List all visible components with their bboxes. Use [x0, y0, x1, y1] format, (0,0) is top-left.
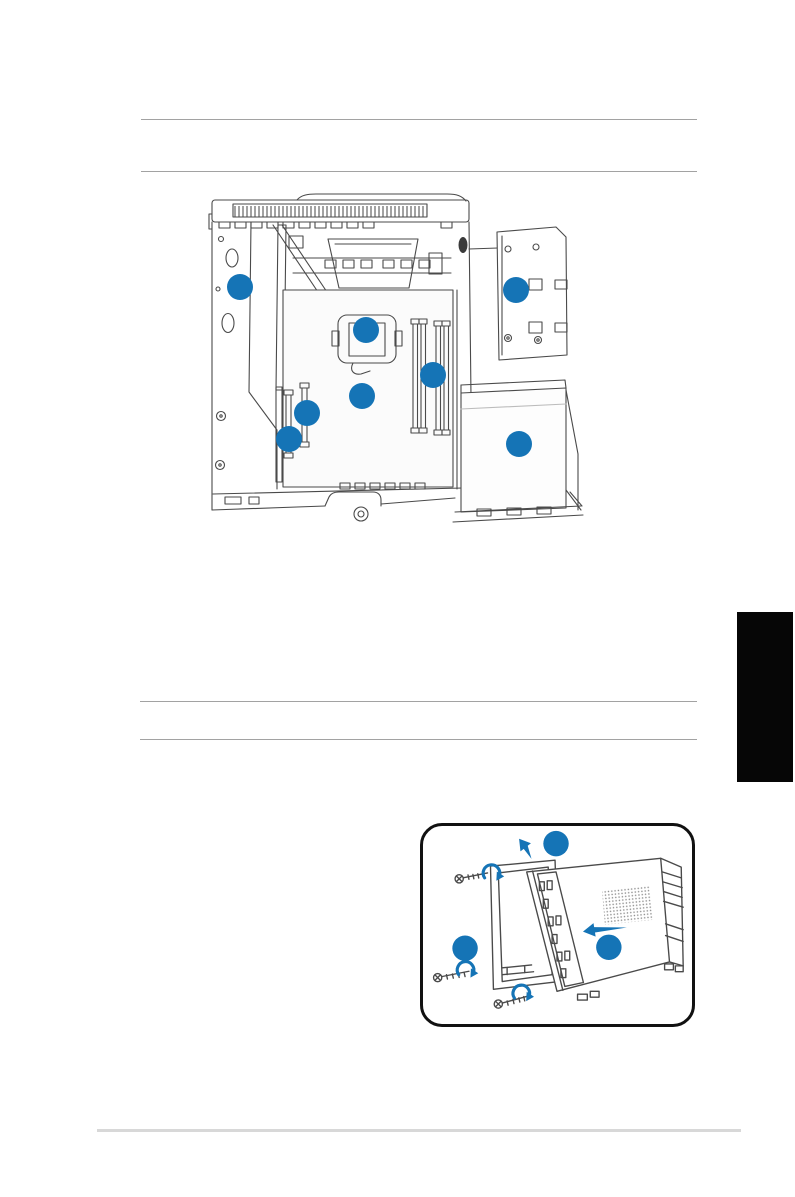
lift-arrow — [514, 835, 539, 862]
panel-callout-marker-3 — [596, 935, 621, 960]
callout-marker-4 — [420, 362, 446, 388]
mesh-vent — [602, 886, 653, 925]
header-rule-bottom — [141, 171, 697, 172]
case-interior-figure — [185, 192, 605, 532]
front-panel — [209, 214, 277, 510]
cover-bottom-tabs — [578, 991, 600, 1000]
callout-marker-7 — [276, 426, 302, 452]
screw-3 — [494, 996, 527, 1008]
section-rule-bottom — [140, 739, 697, 740]
header-rule-top — [141, 119, 697, 120]
chassis-line-art — [434, 858, 684, 1008]
manual-page — [0, 0, 795, 1197]
footer-rule — [97, 1129, 741, 1132]
chassis-clips — [219, 222, 452, 228]
panel-removal-figure — [420, 823, 695, 1027]
chapter-tab — [737, 612, 793, 782]
case-interior-svg — [185, 192, 605, 532]
bottom-rail-foot — [212, 483, 463, 521]
screw-2 — [434, 971, 469, 981]
side-latch — [459, 237, 468, 253]
vent-grille — [233, 204, 427, 217]
callout-marker-8 — [506, 431, 532, 457]
callout-marker-6 — [294, 400, 320, 426]
case-line-art — [209, 194, 583, 522]
panel-callout-marker-1 — [543, 831, 568, 856]
callout-marker-5 — [349, 383, 375, 409]
panel-removal-svg — [423, 826, 692, 1026]
callout-marker-3 — [503, 277, 529, 303]
section-rule-top — [140, 701, 697, 702]
panel-callout-marker-2 — [452, 936, 477, 961]
callout-marker-2 — [353, 317, 379, 343]
callout-marker-1 — [227, 274, 253, 300]
